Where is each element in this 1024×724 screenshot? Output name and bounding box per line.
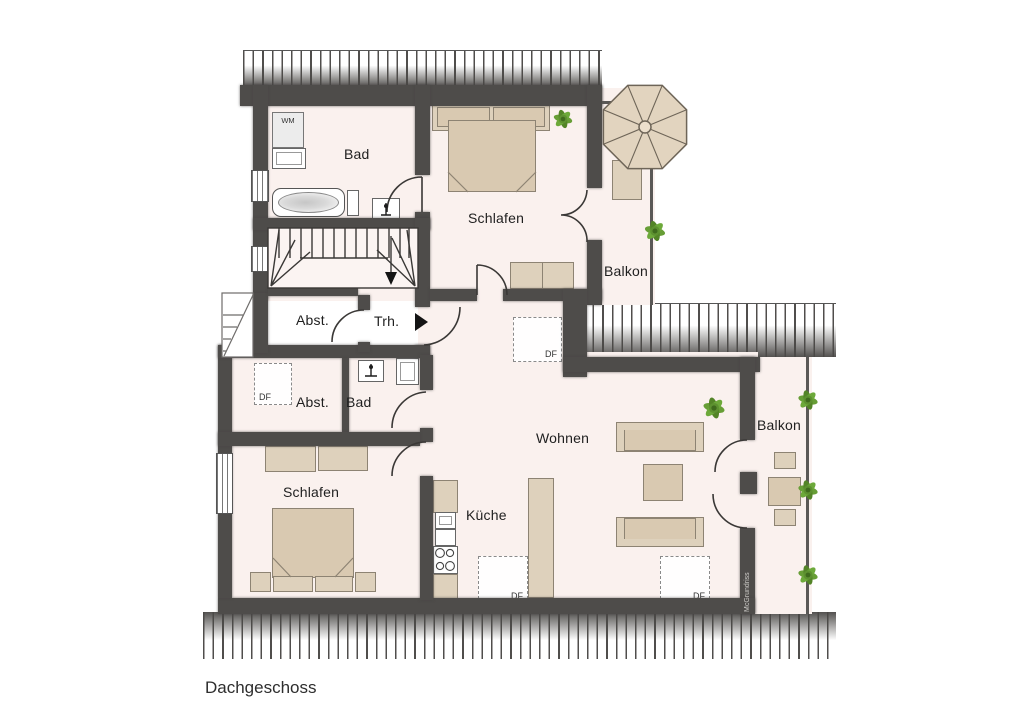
room-label-kueche: Küche <box>466 507 507 523</box>
balcony-railing <box>650 101 653 305</box>
wall <box>740 472 757 494</box>
room-label-balkon-top: Balkon <box>604 263 648 279</box>
sink-icon <box>272 148 306 169</box>
roof-hatch-top <box>243 50 602 87</box>
sideboard-icon <box>542 262 574 289</box>
wall <box>415 85 430 175</box>
roof-window-label: DF <box>259 392 271 402</box>
roof-hatch-middle <box>583 303 836 357</box>
nightstand-icon <box>250 572 271 592</box>
wall <box>420 355 433 390</box>
toilet-icon <box>372 198 400 219</box>
wall <box>415 218 430 307</box>
room-label-wohnen: Wohnen <box>536 430 589 446</box>
roof-window-marker: DF <box>513 317 562 362</box>
room-label-bad-top: Bad <box>344 146 370 162</box>
bed-pillow <box>273 576 313 592</box>
wall <box>358 342 370 352</box>
room-label-balkon-right: Balkon <box>757 417 801 433</box>
room-label-schlafen-bottom: Schlafen <box>283 484 339 500</box>
wall <box>218 345 430 358</box>
sink-icon <box>396 358 419 385</box>
sideboard-icon <box>510 262 543 289</box>
wall <box>587 240 602 305</box>
wardrobe-icon <box>318 446 368 471</box>
bed-icon <box>272 508 354 578</box>
roof-window-marker: DF <box>660 556 710 604</box>
wall <box>253 218 430 230</box>
kitchen-counter <box>433 574 458 599</box>
watermark: McGrundriss <box>744 572 751 612</box>
room-label-schlafen-top: Schlafen <box>468 210 524 226</box>
sofa-seat <box>624 430 696 451</box>
kitchen-counter <box>433 480 458 513</box>
wall <box>268 288 358 296</box>
lounge-chair-icon <box>612 160 642 200</box>
nightstand-icon <box>355 572 376 592</box>
roof-window-label: DF <box>545 349 557 359</box>
washing-machine-label: WM <box>281 116 294 125</box>
wall <box>218 432 420 446</box>
balcony-railing <box>602 101 653 104</box>
wall <box>218 598 755 614</box>
coffee-table-icon <box>643 464 683 501</box>
wall <box>563 357 760 372</box>
page-title: Dachgeschoss <box>205 678 317 698</box>
kitchen-sink-icon <box>435 529 456 546</box>
balcony-chair-icon <box>774 452 796 469</box>
balcony-railing <box>806 357 809 614</box>
bathtub-icon <box>272 188 345 217</box>
sofa-seat <box>624 518 696 539</box>
bed-pillow <box>315 576 353 592</box>
wall <box>358 295 370 310</box>
wall <box>420 428 433 442</box>
room-label-abst-top: Abst. <box>296 312 329 328</box>
roof-window-marker: DF <box>254 363 292 405</box>
floor-plan: WM DF DF DF DF <box>0 0 1024 724</box>
wall <box>420 476 433 600</box>
stove-icon <box>433 546 458 574</box>
wardrobe-icon <box>265 446 316 472</box>
stair-direction-arrow-icon <box>415 313 428 331</box>
washing-machine-icon: WM <box>272 112 304 148</box>
roof-hatch-bottom <box>203 612 836 659</box>
window-marker <box>251 246 269 272</box>
balcony-chair-icon <box>774 509 796 526</box>
balcony-table-icon <box>768 477 801 506</box>
oven-icon <box>435 512 456 529</box>
bathtub-step <box>347 190 359 216</box>
window-marker <box>216 453 233 514</box>
kitchen-island <box>528 478 554 598</box>
room-label-trh: Trh. <box>374 313 399 329</box>
wall <box>587 85 602 188</box>
room-label-bad-bottom: Bad <box>346 394 372 410</box>
wall <box>253 293 268 353</box>
roof-window-marker: DF <box>478 556 528 604</box>
bed-icon <box>448 120 536 192</box>
window-marker <box>251 170 269 202</box>
toilet-icon <box>358 360 384 382</box>
room-label-abst-bottom: Abst. <box>296 394 329 410</box>
wall <box>430 289 477 301</box>
wall <box>740 357 755 440</box>
